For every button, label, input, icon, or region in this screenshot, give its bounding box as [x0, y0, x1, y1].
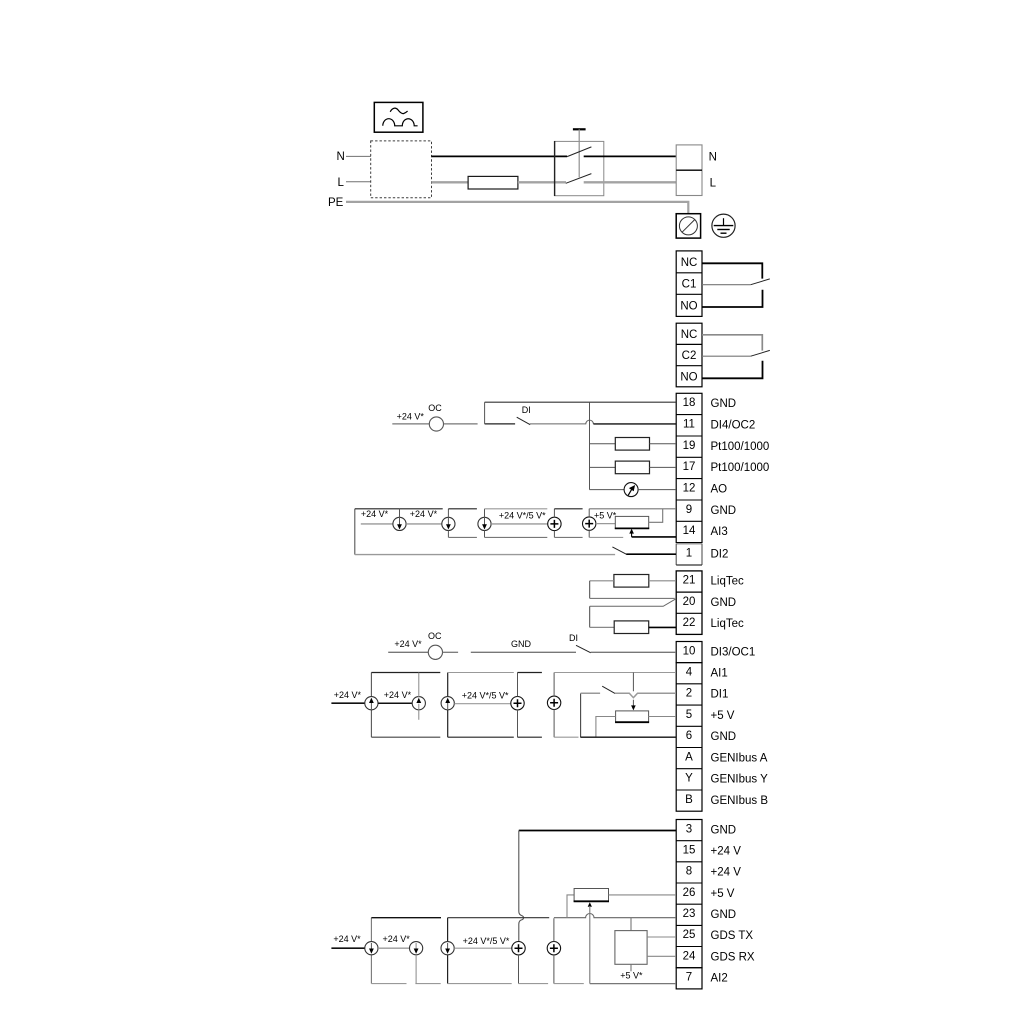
- svg-text:+24 V: +24 V: [711, 867, 742, 879]
- svg-text:14: 14: [683, 525, 696, 537]
- svg-text:6: 6: [686, 730, 692, 742]
- svg-text:3: 3: [686, 823, 692, 835]
- svg-text:NO: NO: [680, 372, 697, 384]
- svg-text:26: 26: [683, 887, 696, 899]
- svg-text:OC: OC: [428, 403, 442, 413]
- svg-text:+5 V: +5 V: [711, 710, 735, 722]
- svg-text:C2: C2: [682, 350, 697, 362]
- svg-text:GND: GND: [511, 639, 532, 649]
- svg-text:DI3/OC1: DI3/OC1: [711, 646, 756, 658]
- svg-text:8: 8: [686, 866, 692, 878]
- svg-text:+24 V: +24 V: [711, 846, 742, 858]
- svg-text:AO: AO: [711, 484, 728, 496]
- svg-text:PE: PE: [328, 197, 344, 209]
- svg-text:+24 V*: +24 V*: [333, 934, 361, 944]
- svg-text:GND: GND: [711, 505, 737, 517]
- svg-text:22: 22: [683, 617, 696, 629]
- svg-text:+24 V*: +24 V*: [334, 690, 362, 700]
- svg-text:AI3: AI3: [711, 526, 728, 538]
- svg-text:DI2: DI2: [711, 549, 729, 561]
- svg-text:GND: GND: [711, 731, 737, 743]
- svg-text:GENIbus Y: GENIbus Y: [711, 774, 769, 786]
- svg-text:GDS TX: GDS TX: [711, 930, 754, 942]
- svg-text:15: 15: [683, 845, 696, 857]
- svg-text:10: 10: [683, 645, 696, 657]
- svg-text:OC: OC: [428, 631, 442, 641]
- svg-text:18: 18: [683, 397, 696, 409]
- svg-text:NO: NO: [680, 300, 697, 312]
- svg-text:+24 V*/5 V*: +24 V*/5 V*: [499, 511, 546, 521]
- svg-text:DI: DI: [522, 405, 531, 415]
- svg-text:23: 23: [683, 908, 696, 920]
- svg-text:+24 V*: +24 V*: [383, 934, 411, 944]
- svg-text:19: 19: [683, 440, 696, 452]
- svg-text:+24 V*: +24 V*: [394, 639, 422, 649]
- svg-text:5: 5: [686, 709, 692, 721]
- svg-text:9: 9: [686, 504, 692, 516]
- svg-text:N: N: [709, 152, 717, 164]
- svg-text:GND: GND: [711, 909, 737, 921]
- svg-text:Pt100/1000: Pt100/1000: [711, 441, 770, 453]
- svg-text:1: 1: [686, 548, 692, 560]
- svg-text:12: 12: [683, 483, 696, 495]
- svg-text:25: 25: [683, 929, 696, 941]
- svg-text:DI4/OC2: DI4/OC2: [711, 420, 756, 432]
- svg-text:AI2: AI2: [711, 973, 728, 985]
- svg-text:B: B: [685, 794, 693, 806]
- svg-text:+24 V*/5 V*: +24 V*/5 V*: [462, 690, 509, 700]
- svg-text:+24 V*: +24 V*: [384, 690, 412, 700]
- svg-text:LiqTec: LiqTec: [711, 576, 744, 588]
- svg-text:GENIbus A: GENIbus A: [711, 752, 768, 764]
- svg-text:+24 V*: +24 V*: [410, 509, 438, 519]
- svg-text:L: L: [338, 177, 345, 189]
- svg-text:C1: C1: [682, 279, 697, 291]
- svg-text:NC: NC: [681, 257, 698, 269]
- svg-text:24: 24: [683, 950, 696, 962]
- svg-text:7: 7: [686, 972, 692, 984]
- svg-text:AI1: AI1: [711, 667, 728, 679]
- svg-text:GND: GND: [711, 597, 737, 609]
- svg-text:Pt100/1000: Pt100/1000: [711, 462, 770, 474]
- svg-text:GENIbus B: GENIbus B: [711, 795, 769, 807]
- svg-text:A: A: [685, 751, 693, 763]
- svg-text:+5 V*: +5 V*: [594, 510, 617, 520]
- svg-text:20: 20: [683, 596, 696, 608]
- svg-text:+24 V*/5 V*: +24 V*/5 V*: [463, 936, 510, 946]
- svg-text:2: 2: [686, 688, 692, 700]
- svg-text:N: N: [337, 151, 345, 163]
- svg-text:21: 21: [683, 575, 696, 587]
- svg-text:GDS RX: GDS RX: [711, 951, 755, 963]
- svg-text:GND: GND: [711, 398, 737, 410]
- svg-text:11: 11: [683, 419, 695, 431]
- svg-text:GND: GND: [711, 824, 737, 836]
- svg-text:LiqTec: LiqTec: [711, 618, 744, 630]
- svg-text:4: 4: [686, 666, 693, 678]
- svg-text:L: L: [710, 177, 717, 189]
- svg-text:+5 V*: +5 V*: [620, 971, 643, 981]
- svg-text:17: 17: [683, 461, 696, 473]
- svg-text:DI1: DI1: [711, 689, 729, 701]
- svg-text:Y: Y: [685, 773, 693, 785]
- svg-text:+24 V*: +24 V*: [361, 509, 389, 519]
- svg-text:+5 V: +5 V: [711, 888, 735, 900]
- svg-text:+24 V*: +24 V*: [397, 411, 425, 421]
- svg-text:DI: DI: [569, 633, 578, 643]
- svg-text:NC: NC: [681, 329, 698, 341]
